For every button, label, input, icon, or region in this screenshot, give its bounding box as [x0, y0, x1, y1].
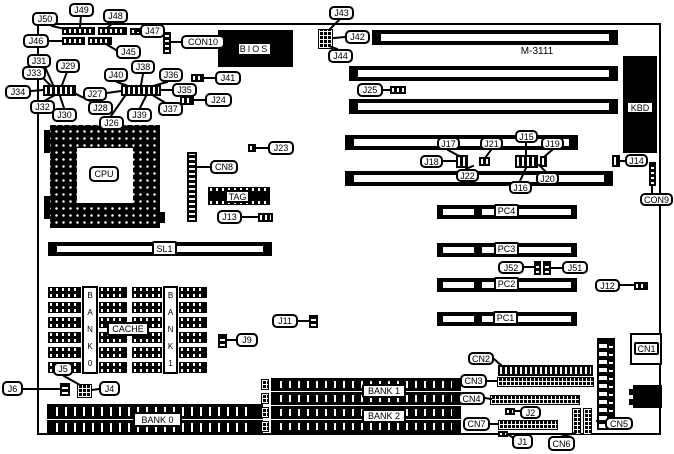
cn4-connector [490, 395, 580, 405]
label-cn2: CN2 [468, 352, 494, 365]
label-j23: J23 [268, 141, 294, 155]
j19-block [540, 156, 547, 167]
label-j52: J52 [498, 261, 524, 274]
label-j13: J13 [217, 210, 242, 224]
j15-block [515, 155, 538, 168]
jumper-block-2 [121, 85, 161, 96]
label-j1: J1 [512, 434, 533, 449]
jumper-strip-a [62, 27, 95, 35]
j1-jumper [498, 431, 508, 437]
cache-bank0-chips-chip-4-1 [99, 347, 127, 358]
label-j25: J25 [357, 83, 383, 97]
cache-bank1-chips-chip-2-1 [179, 317, 207, 328]
cn2-connector [498, 365, 593, 376]
cache-bank0-chips-chip-0-0 [48, 287, 81, 298]
cache-bank1-chips-chip-0-1 [179, 287, 207, 298]
label-j28: J28 [88, 101, 113, 115]
label-pc1: PC1 [493, 311, 518, 325]
label-j27: J27 [83, 87, 107, 101]
cache-bank1-chips-chip-0-0 [132, 287, 162, 298]
label-j41: J41 [215, 71, 241, 85]
label-cpu: CPU [89, 166, 119, 182]
label-j26: J26 [99, 116, 124, 130]
cache-bank1-chips-chip-5-1 [179, 362, 207, 373]
label-j47: J47 [140, 24, 165, 38]
j25-jumper [390, 86, 406, 94]
label-j34: J34 [5, 85, 31, 99]
cache-bank1-chips-chip-1-1 [179, 302, 207, 313]
cache-bank0-chips-chip-3-0 [48, 332, 81, 343]
j13-jumper [258, 213, 273, 222]
din-tab-1 [629, 389, 634, 395]
bank0-vstrip: BANK0 [82, 286, 98, 374]
label-j5: J5 [53, 362, 73, 376]
j41-jumper [191, 74, 204, 82]
isa-slot-3 [349, 99, 618, 114]
label-bank0: BANK 0 [133, 412, 182, 427]
label-cache: CACHE [107, 322, 149, 336]
label-j14: J14 [625, 154, 648, 167]
cn6-block-1 [572, 408, 581, 435]
cpu-tab-upper [44, 130, 50, 153]
label-con9: CON9 [640, 193, 673, 206]
j52-jumper [534, 261, 541, 275]
cache-bank1-chips-chip-1-0 [132, 302, 162, 313]
label-j24: J24 [205, 93, 232, 107]
label-j49: J49 [69, 3, 94, 17]
j43-block [318, 29, 333, 49]
label-j45: J45 [116, 45, 141, 59]
cpu-tab-lower [44, 196, 50, 219]
cache-bank0-chips-chip-5-1 [99, 362, 127, 373]
label-bank2: BANK 2 [362, 409, 406, 423]
label-j46: J46 [23, 34, 49, 48]
label-j39: J39 [127, 108, 152, 122]
label-j38: J38 [131, 60, 155, 74]
cn6-block-2 [583, 408, 592, 435]
j21-block [479, 157, 490, 166]
label-cn4: CN4 [458, 392, 485, 405]
label-cn3: CN3 [460, 374, 487, 388]
label-j2: J2 [520, 406, 541, 419]
label-j33: J33 [22, 66, 46, 80]
label-pc3: PC3 [494, 242, 519, 256]
j51-jumper [543, 261, 551, 275]
j12-jumper [634, 282, 648, 290]
label-cn1: CN1 [634, 342, 659, 355]
jumper-strip-b [98, 27, 127, 35]
label-cn6: CN6 [548, 436, 575, 451]
j6-jumper [60, 383, 70, 396]
label-j42: J42 [345, 30, 370, 44]
label-j12: J12 [595, 279, 620, 292]
con9-connector [649, 162, 656, 186]
simm-tab-3 [261, 407, 269, 418]
simm-tab-1 [261, 379, 269, 390]
label-pc2: PC2 [494, 277, 519, 291]
label-cn5: CN5 [605, 417, 633, 430]
j2-jumper [505, 408, 515, 415]
label-j20: J20 [536, 172, 559, 185]
cache-bank0-chips-chip-2-0 [48, 317, 81, 328]
cn3-connector [497, 377, 594, 387]
label-j17: J17 [437, 137, 460, 150]
simm-tab-4 [261, 421, 269, 432]
simm-tab-2 [261, 393, 269, 404]
cache-bank0-chips-chip-1-0 [48, 302, 81, 313]
motherboard-diagram: BANK0BANK1J50J49J48J47J46J45CON10J31J29J… [0, 0, 674, 454]
isa-slot-5 [345, 171, 613, 186]
cache-bank0-chips-chip-0-1 [99, 287, 127, 298]
label-m3111: M-3111 [514, 45, 560, 57]
label-j37: J37 [158, 102, 183, 116]
j23-jumper [248, 144, 256, 152]
label-j43: J43 [329, 6, 354, 20]
cache-bank1-chips-chip-4-1 [179, 347, 207, 358]
j9-jumper [218, 334, 227, 348]
label-j51: J51 [562, 261, 588, 274]
cache-bank1-chips-chip-4-0 [132, 347, 162, 358]
label-pc4: PC4 [494, 204, 519, 218]
label-j48: J48 [103, 9, 128, 23]
cn7-connector [498, 420, 558, 430]
label-j6: J6 [2, 381, 23, 396]
jumper-block-1 [43, 85, 76, 96]
label-j44: J44 [328, 49, 353, 63]
j45-jumper [88, 37, 112, 45]
din-tab-2 [629, 399, 634, 405]
label-j16: J16 [509, 181, 532, 194]
cache-bank1-chips-chip-3-1 [179, 332, 207, 343]
cn8-strip [187, 152, 197, 222]
label-j30: J30 [52, 108, 77, 122]
cache-bank0-chips-chip-1-1 [99, 302, 127, 313]
cache-bank1-chips-chip-5-0 [132, 362, 162, 373]
label-j19: J19 [541, 137, 564, 150]
label-j21: J21 [480, 137, 503, 150]
label-j4: J4 [99, 381, 120, 396]
label-bios: BIOS [237, 42, 272, 56]
label-cn7: CN7 [463, 417, 490, 431]
label-cn8: CN8 [210, 160, 238, 174]
label-j35: J35 [172, 83, 197, 97]
label-j18: J18 [420, 155, 443, 168]
label-tag: TAG [225, 190, 250, 203]
label-con10: CON10 [181, 35, 225, 49]
label-j29: J29 [56, 59, 80, 73]
bank1-vstrip: BANK1 [163, 286, 178, 374]
label-j50: J50 [32, 12, 58, 26]
din-connector [633, 385, 662, 408]
label-j15: J15 [515, 130, 538, 143]
isa-slot-1 [372, 30, 618, 45]
isa-slot-2 [349, 66, 618, 81]
label-j22: J22 [456, 169, 479, 182]
label-j11: J11 [272, 314, 298, 328]
label-j36: J36 [159, 68, 183, 82]
j14-block [612, 155, 620, 167]
cpu-tab-right [160, 212, 165, 223]
label-sl1: SL1 [152, 241, 177, 256]
j17-block [456, 155, 468, 168]
j11-jumper [309, 315, 318, 328]
label-bank1: BANK 1 [362, 384, 406, 398]
j4-jumper [77, 384, 92, 398]
label-kbd: KBD [626, 101, 654, 114]
label-j40: J40 [104, 68, 128, 82]
j46-jumper [62, 37, 85, 45]
cache-bank0-chips-chip-4-0 [48, 347, 81, 358]
label-j9: J9 [236, 333, 258, 347]
